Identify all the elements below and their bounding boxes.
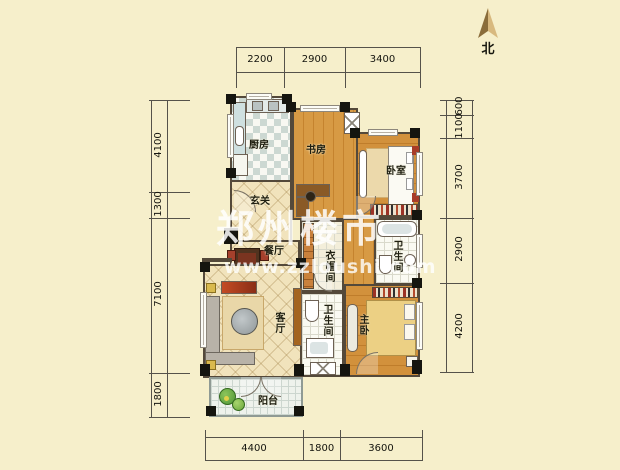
tv-cabinet — [221, 281, 257, 294]
room-label-bath-lower: 卫生间 — [320, 304, 332, 337]
bathtub-basin — [382, 224, 412, 234]
column — [412, 210, 422, 220]
dim-right-2: 1100 — [455, 104, 465, 148]
coffee-table — [231, 308, 258, 335]
dim-top-1: 2200 — [236, 55, 284, 65]
dim-left-4: 1800 — [154, 372, 164, 416]
room-label-living: 客厅 — [272, 312, 284, 334]
north-label: 北 — [476, 42, 500, 55]
pillow — [404, 304, 415, 320]
desk-chair — [305, 191, 316, 202]
column — [294, 406, 304, 416]
dim-bottom-2: 1800 — [303, 444, 340, 454]
room-label-bedroom: 卧室 — [386, 166, 406, 178]
sofa-left — [205, 296, 220, 358]
plant-pot-icon — [206, 283, 216, 293]
column — [286, 102, 296, 112]
north-arrow-icon — [477, 8, 499, 40]
window-study — [300, 105, 340, 112]
column — [410, 128, 420, 138]
room-label-master: 主卧 — [356, 314, 368, 336]
room-label-kitchen: 厨房 — [249, 140, 269, 152]
dim-left-2: 1300 — [154, 182, 164, 226]
window-master — [416, 302, 423, 350]
toilet — [305, 300, 319, 322]
living-cabinet — [293, 288, 302, 346]
window-bedroom-right — [416, 152, 423, 196]
column — [206, 406, 216, 416]
master-wardrobe — [372, 287, 418, 298]
window-kitchen — [227, 114, 234, 158]
column — [226, 168, 236, 178]
window-kitchen-top — [246, 93, 272, 100]
stove-icon — [252, 101, 263, 111]
laundry-basin — [310, 342, 328, 354]
dim-right-3: 3700 — [455, 155, 465, 199]
plant-icon — [232, 398, 245, 411]
dim-left-1: 4100 — [154, 123, 164, 167]
column — [340, 102, 350, 112]
column — [412, 360, 422, 374]
window-living — [200, 292, 207, 348]
bedroom-curtain — [359, 150, 367, 198]
column — [412, 278, 422, 288]
dim-right-5: 4200 — [455, 304, 465, 348]
column — [294, 364, 304, 376]
dim-top-2: 2900 — [284, 55, 345, 65]
watermark-title: 郑州楼市 — [216, 210, 384, 248]
pillow — [404, 324, 415, 340]
washing-machine — [310, 362, 336, 375]
column — [350, 128, 360, 138]
floorplan-canvas: 北 2200 2900 3400 4100 1300 7100 1800 — [0, 0, 620, 470]
dim-right-4: 2900 — [455, 227, 465, 271]
window-bedroom-top — [368, 129, 398, 136]
dim-bottom-1: 4400 — [205, 444, 303, 454]
sink-basin-icon — [268, 101, 279, 111]
dim-left-3: 7100 — [154, 272, 164, 316]
watermark-url: www.zzloushi.com — [224, 258, 437, 277]
dim-top-3: 3400 — [345, 55, 420, 65]
room-label-balcony: 阳台 — [258, 396, 278, 408]
column — [226, 94, 236, 104]
column — [200, 262, 210, 272]
kitchen-sink-icon — [235, 126, 244, 146]
column — [200, 364, 210, 376]
room-label-study: 书房 — [306, 145, 326, 157]
column — [340, 364, 350, 376]
flower-icon — [224, 396, 229, 401]
dim-bottom-3: 3600 — [340, 444, 422, 454]
pillow — [406, 178, 413, 190]
